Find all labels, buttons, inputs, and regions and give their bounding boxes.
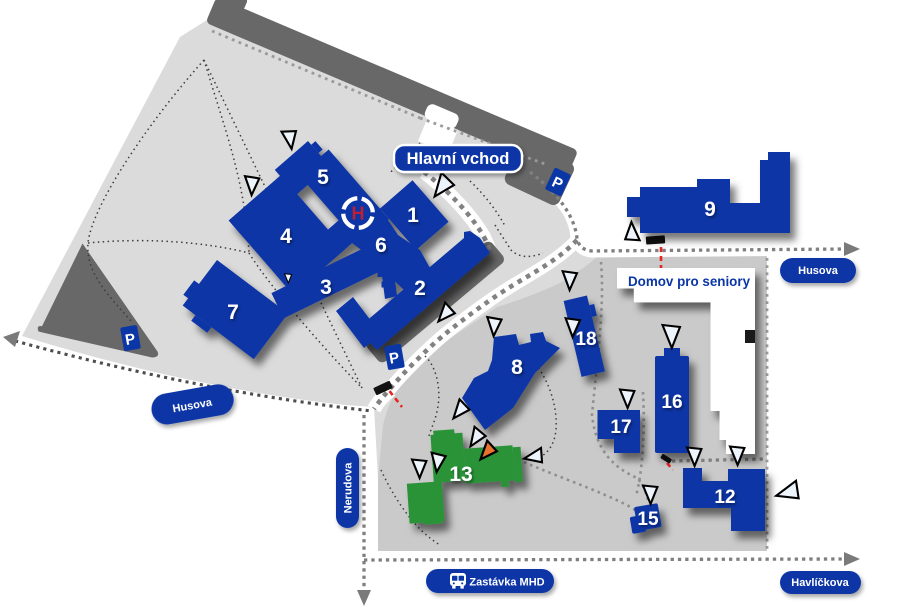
svg-text:5: 5 (317, 166, 329, 189)
svg-text:Havlíčkova: Havlíčkova (791, 577, 849, 589)
svg-text:Husova: Husova (798, 265, 839, 277)
svg-text:13: 13 (449, 463, 472, 486)
svg-text:Zastávka MHD: Zastávka MHD (469, 577, 544, 589)
svg-text:12: 12 (714, 487, 735, 508)
svg-text:9: 9 (704, 198, 716, 221)
svg-text:6: 6 (375, 234, 387, 257)
svg-text:8: 8 (511, 356, 523, 379)
svg-text:4: 4 (280, 225, 292, 248)
svg-text:Hlavní vchod: Hlavní vchod (407, 150, 510, 168)
svg-text:Nerudova: Nerudova (343, 462, 355, 514)
svg-text:1: 1 (407, 204, 419, 227)
svg-text:Domov pro seniory: Domov pro seniory (628, 274, 751, 289)
svg-text:3: 3 (320, 276, 332, 299)
svg-text:16: 16 (661, 392, 682, 413)
svg-text:H: H (352, 204, 365, 224)
svg-text:2: 2 (414, 277, 426, 300)
svg-text:17: 17 (610, 417, 631, 438)
svg-text:7: 7 (227, 301, 239, 324)
svg-text:15: 15 (637, 509, 659, 530)
svg-text:18: 18 (575, 329, 596, 350)
